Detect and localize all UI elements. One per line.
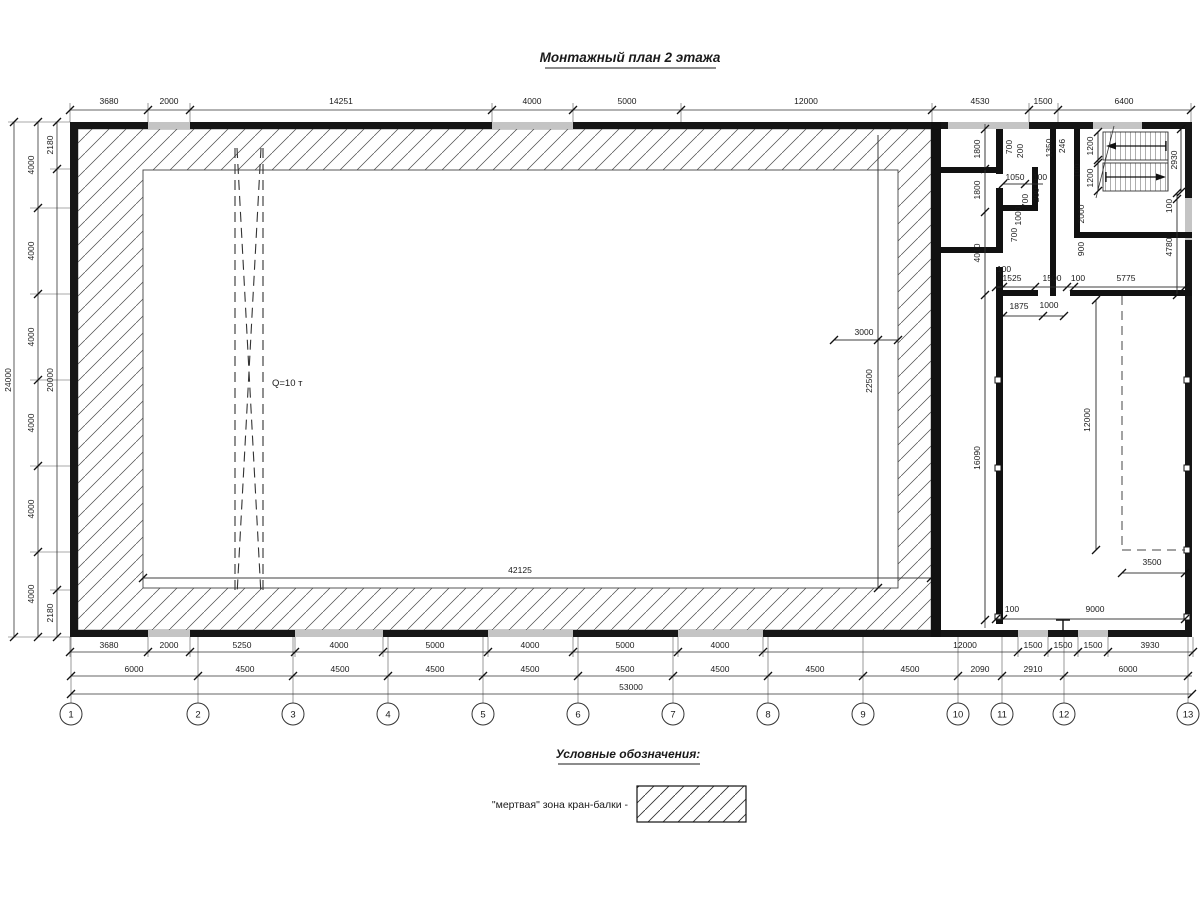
axis-number: 2 — [195, 710, 200, 721]
axis-number: 3 — [290, 710, 295, 721]
reference-dashed-lines — [1122, 296, 1185, 550]
dimension-label: 3000 — [855, 327, 874, 337]
dimension-label: 4530 — [971, 96, 990, 106]
dimension-label: 4000 — [330, 640, 349, 650]
axis-number: 9 — [860, 710, 865, 721]
dimension-label: 4000 — [26, 241, 36, 260]
dimension-label: 1875 — [1010, 301, 1029, 311]
dimension-label: 1525 — [1003, 273, 1022, 283]
dimension-label: 1500 — [1034, 96, 1053, 106]
dimension-label: 4000 — [26, 327, 36, 346]
dimension-label: 12000 — [794, 96, 818, 106]
dimension-label: 100 — [1072, 164, 1082, 178]
dimension-label: 1350 — [1044, 138, 1054, 157]
legend-hatch-swatch — [637, 786, 746, 822]
dimension-label: 4000 — [26, 155, 36, 174]
legend-item-label: "мертвая" зона кран-балки - — [492, 799, 629, 811]
column-marks — [995, 377, 1190, 620]
dimension-label: 20000 — [45, 368, 55, 392]
dimension-label: 3680 — [100, 96, 119, 106]
dimension-label: 4000 — [521, 640, 540, 650]
dimension-label: 2910 — [1024, 664, 1043, 674]
dimension-label: 1200 — [1085, 168, 1095, 187]
dimension-label: 2000 — [1076, 204, 1086, 223]
dimension-label: 3930 — [1141, 640, 1160, 650]
axis-number: 4 — [385, 710, 390, 721]
dimension-label: 2180 — [45, 603, 55, 622]
dimension-label: 4010 — [972, 243, 982, 262]
dimension-label: 2930 — [1169, 150, 1179, 169]
axis-number: 1 — [68, 710, 73, 721]
dimension-label: 1000 — [1013, 206, 1023, 225]
dimension-label: 1000 — [1040, 300, 1059, 310]
dimension-label: 700 — [1020, 194, 1030, 208]
dimension-label: 4500 — [331, 664, 350, 674]
dimension-label: 6400 — [1115, 96, 1134, 106]
sheet-title: Монтажный план 2 этажа — [540, 50, 721, 68]
legend-heading: Условные обозначения: — [556, 747, 701, 761]
wall-fixture-symbol — [1056, 620, 1070, 631]
dimension-label: 6000 — [1119, 664, 1138, 674]
dimension-label: 42125 — [508, 565, 532, 575]
dimension-label: 4500 — [236, 664, 255, 674]
dimension-label: 1500 — [1043, 273, 1062, 283]
dimension-label: 4500 — [426, 664, 445, 674]
floor-plan-drawing: 3680200014251400050001200045301500640036… — [0, 0, 1200, 900]
dimension-label: 100 — [1164, 199, 1174, 213]
axis-bubbles: 12345678910111213 — [60, 703, 1199, 725]
axis-number: 10 — [953, 710, 964, 721]
axis-number: 5 — [480, 710, 485, 721]
crane-capacity-label: Q=10 т — [272, 378, 303, 389]
dimension-label: 4500 — [806, 664, 825, 674]
legend: Условные обозначения: "мертвая" зона кра… — [492, 747, 746, 822]
dimension-label: 22500 — [864, 369, 874, 393]
dimension-label: 4000 — [26, 499, 36, 518]
dimension-label: 5000 — [426, 640, 445, 650]
dimension-label: 2180 — [45, 135, 55, 154]
drawing-sheet: 3680200014251400050001200045301500640036… — [0, 0, 1200, 900]
dimension-label: 1200 — [1085, 136, 1095, 155]
dimension-label: 4000 — [711, 640, 730, 650]
dimension-label: 4500 — [616, 664, 635, 674]
dimension-label: 4500 — [901, 664, 920, 674]
dimension-label: 5000 — [616, 640, 635, 650]
axis-number: 12 — [1059, 710, 1070, 721]
dimension-label: 1500 — [1054, 640, 1073, 650]
dimension-label: 12000 — [953, 640, 977, 650]
dimension-label: 16090 — [972, 446, 982, 470]
dimension-label: 4500 — [521, 664, 540, 674]
page-title: Монтажный план 2 этажа — [540, 50, 721, 65]
dimension-label: 4780 — [1164, 237, 1174, 256]
crane-dead-zone-hatch — [78, 129, 931, 630]
dimension-label: 5775 — [1117, 273, 1136, 283]
dimension-label: 100 — [1033, 172, 1047, 182]
dimension-label: 1800 — [972, 180, 982, 199]
dimension-label: 5000 — [618, 96, 637, 106]
dimension-label: 100 — [1005, 604, 1019, 614]
dimension-label: 2090 — [971, 664, 990, 674]
axis-number: 11 — [997, 710, 1007, 721]
dimension-label: 2000 — [160, 96, 179, 106]
dimension-label: 1800 — [972, 139, 982, 158]
dimension-label: 1050 — [1006, 172, 1025, 182]
dimension-label: 3500 — [1143, 557, 1162, 567]
dimension-label: 9000 — [1086, 604, 1105, 614]
dimension-label: 700 — [1004, 140, 1014, 154]
dimension-label: 700 — [1009, 228, 1019, 242]
dimension-label: 4000 — [26, 584, 36, 603]
staircase — [1096, 126, 1168, 198]
axis-number: 13 — [1183, 710, 1194, 721]
dimension-label: 4500 — [711, 664, 730, 674]
dimension-label: 1500 — [1024, 640, 1043, 650]
dimension-label: 53000 — [619, 682, 643, 692]
dimension-label: 900 — [1076, 242, 1086, 256]
dimension-label: 246 — [1057, 139, 1067, 153]
dimension-label: 1500 — [1084, 640, 1103, 650]
dimension-label: 4000 — [26, 413, 36, 432]
dimension-label: 4000 — [523, 96, 542, 106]
axis-number: 7 — [670, 710, 675, 721]
dimension-label: 3680 — [100, 640, 119, 650]
dimension-label: 12000 — [1082, 408, 1092, 432]
axis-number: 6 — [575, 710, 580, 721]
dimension-label: 200 — [1015, 144, 1025, 158]
dimension-label: 14251 — [329, 96, 353, 106]
axis-number: 8 — [765, 710, 770, 721]
dimension-label: 5250 — [233, 640, 252, 650]
dimension-label: 100 — [1071, 273, 1085, 283]
dimension-label: 6000 — [125, 664, 144, 674]
dimension-label: 2000 — [160, 640, 179, 650]
dimension-label: 200 — [1031, 188, 1041, 202]
dimension-label: 24000 — [3, 368, 13, 392]
